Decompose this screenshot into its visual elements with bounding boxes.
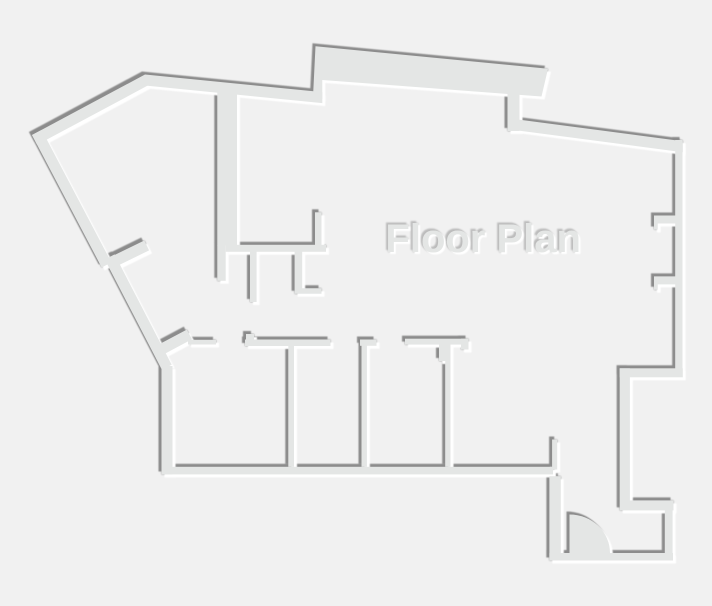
svg-text:Floor Plan: Floor Plan [385,217,581,261]
